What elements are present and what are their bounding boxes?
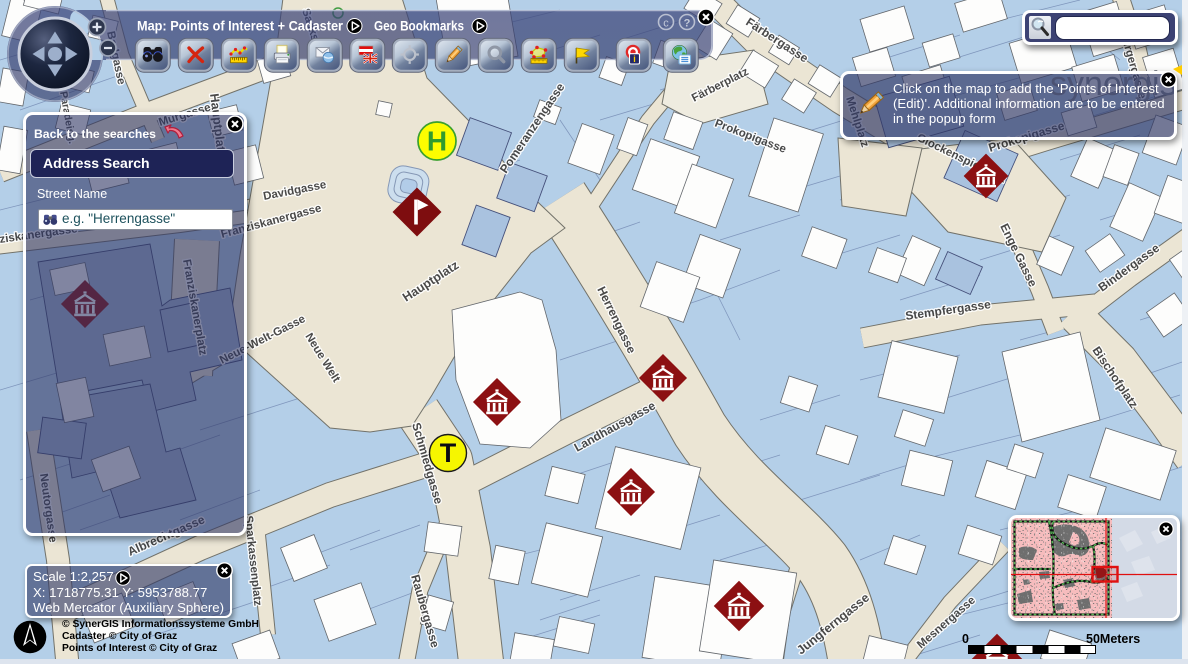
- svg-text:H: H: [427, 126, 447, 157]
- svg-text:c: c: [663, 18, 669, 30]
- svg-text:i: i: [633, 54, 636, 64]
- svg-text:Geo Bookmarks: Geo Bookmarks: [374, 19, 464, 34]
- svg-text:T: T: [440, 438, 457, 468]
- svg-text:Map: Points of Interest + Cada: Map: Points of Interest + Cadaster: [137, 19, 344, 34]
- svg-text:?: ?: [684, 18, 691, 30]
